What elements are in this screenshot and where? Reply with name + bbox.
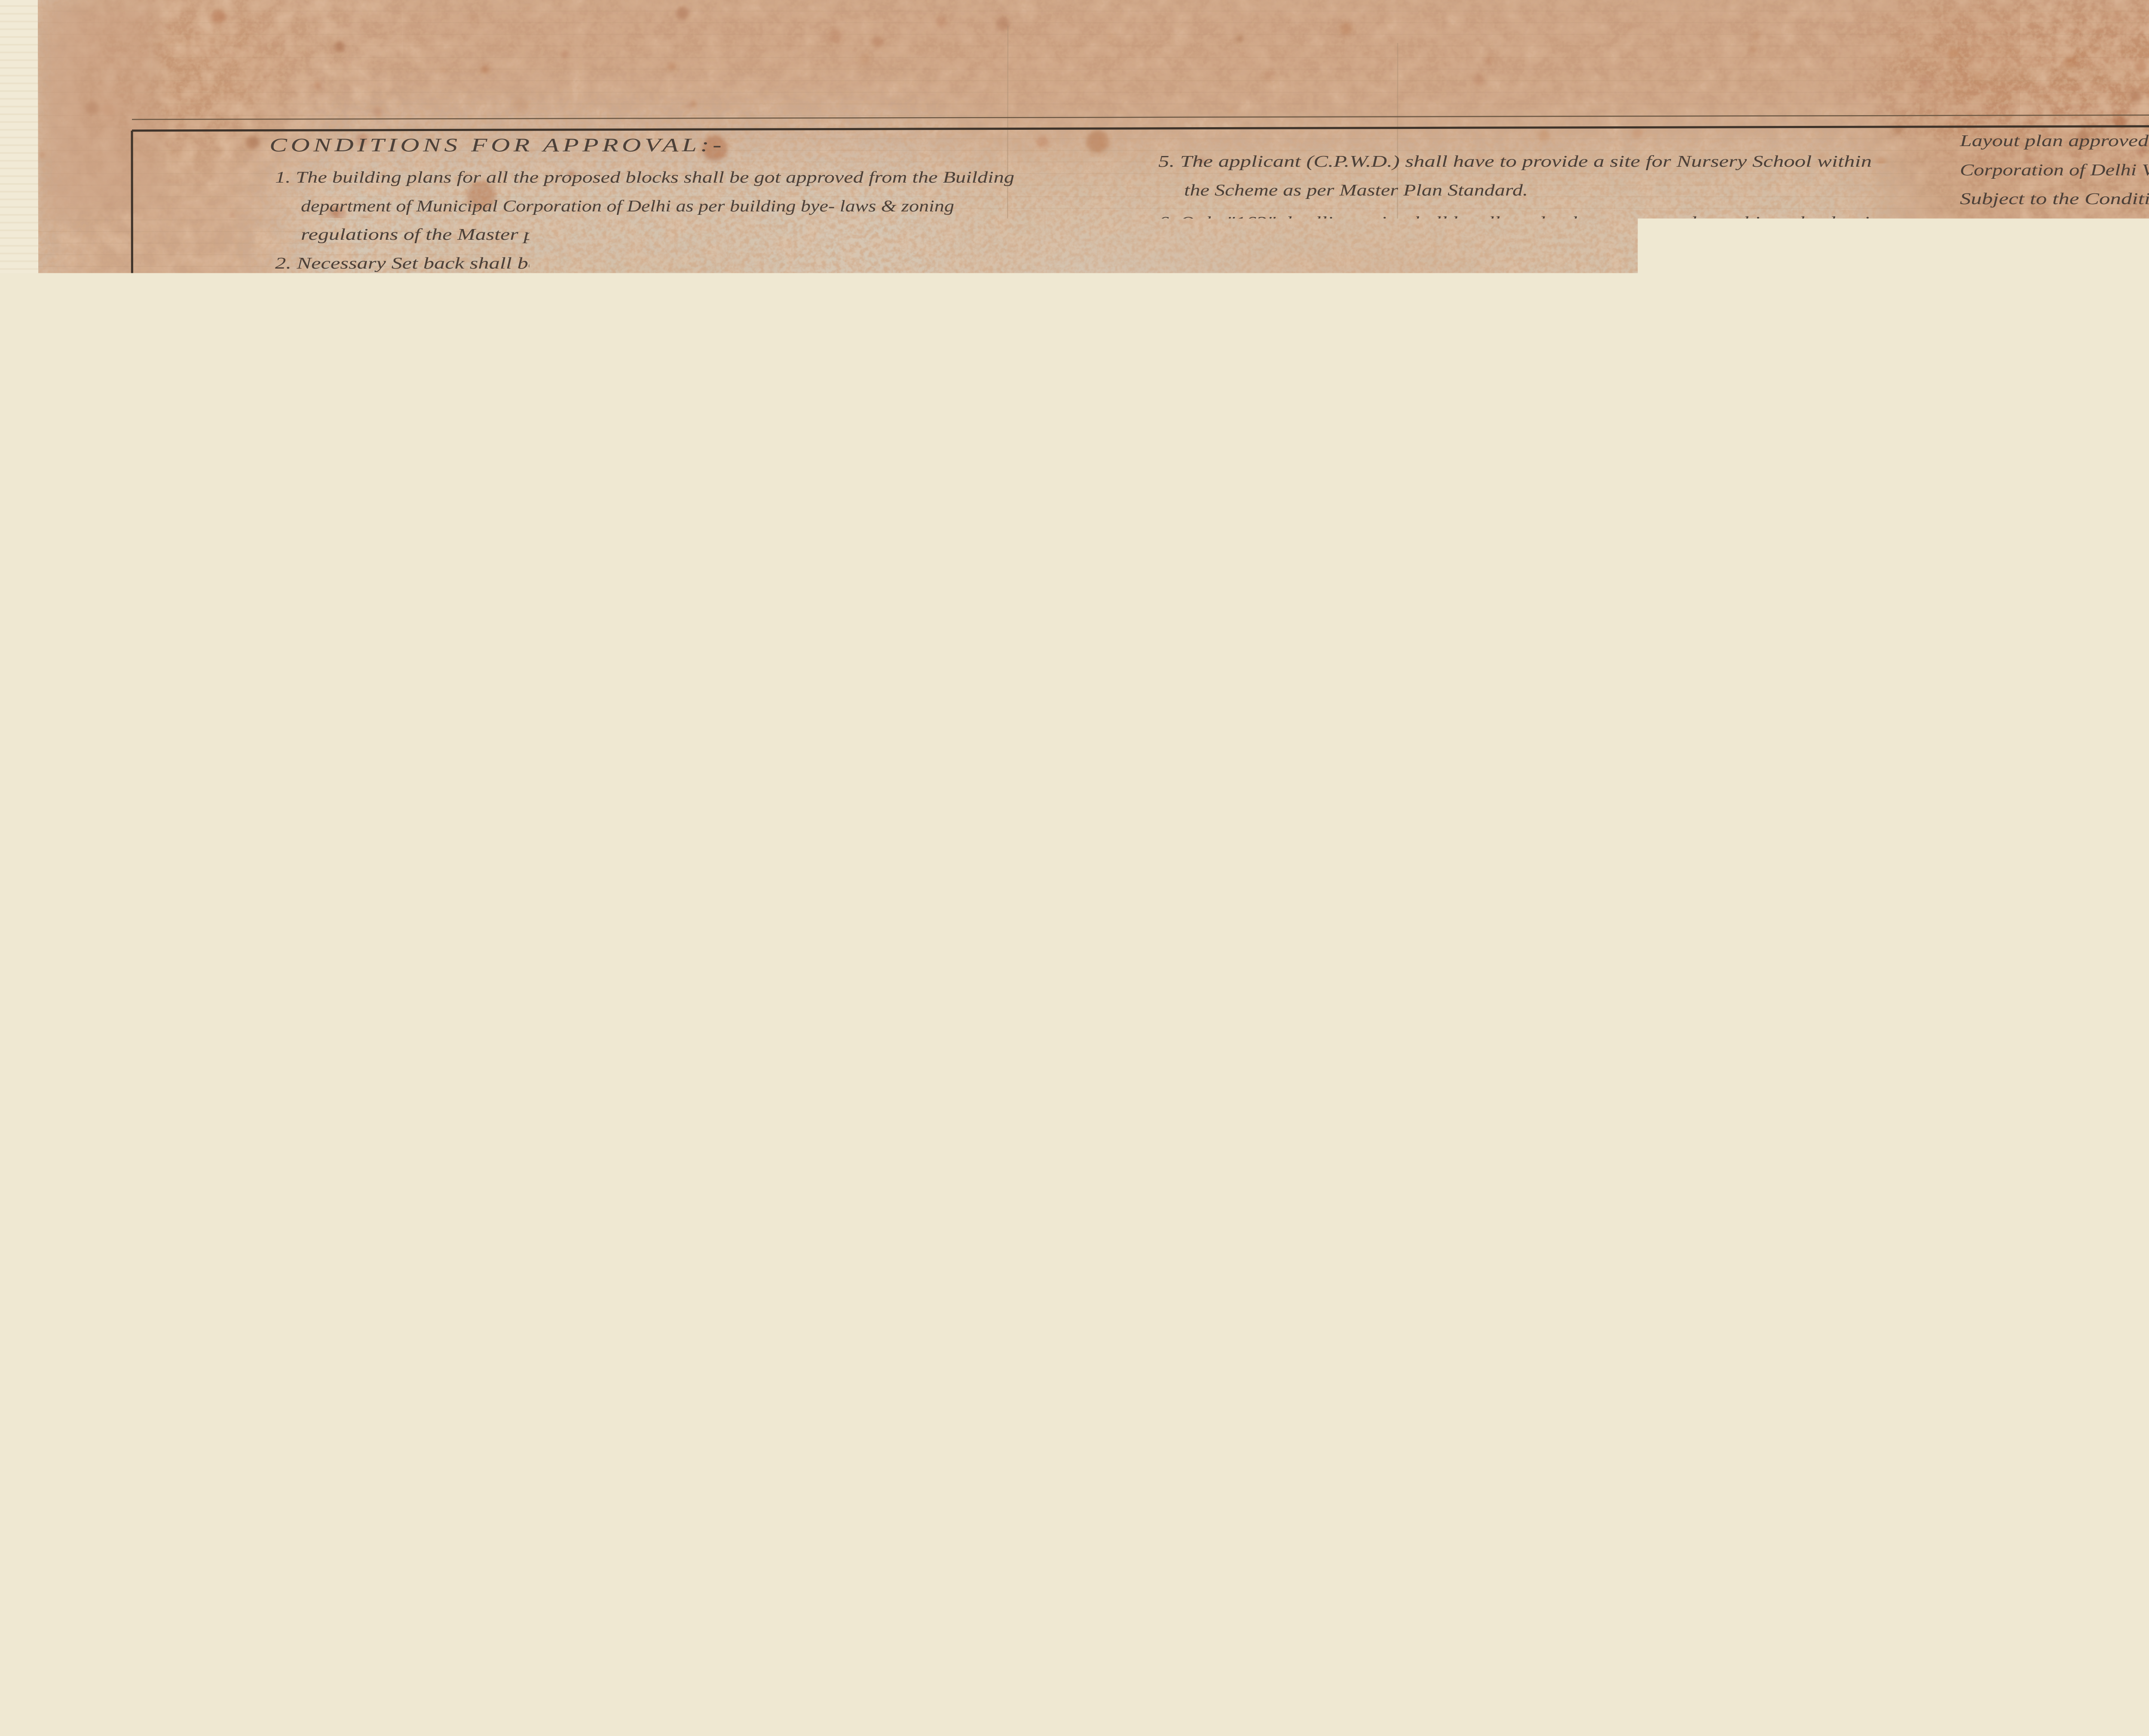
svg-text:PROBYN ROAD: PROBYN ROAD (2078, 810, 2149, 828)
svg-text:II/4: II/4 (542, 481, 567, 501)
svg-text:30': 30' (1736, 553, 1755, 570)
svg-text:III/4: III/4 (1602, 475, 1631, 494)
svg-text:SD/: SD/ (1821, 1417, 1851, 1436)
svg-text:CONST. DIVISION NO. VI C: CONST. DIVISION NO. VI C.P.W.D. NEW DELH… (988, 1247, 1433, 1265)
svg-text:II/4: II/4 (1324, 481, 1350, 501)
svg-text:CENTRAL GOVT, EMPLOYEES: CENTRAL GOVT, EMPLOYEES (1801, 1037, 2149, 1068)
svg-text:29. %: 29. % (831, 1040, 884, 1059)
svg-text:II/4: II/4 (962, 481, 987, 501)
svg-text:L: L (2002, 696, 2012, 716)
svg-text:1. AREA OF THE POCKET.: 1. AREA OF THE POCKET. — — — — — — — — —… (205, 884, 906, 903)
svg-text:B: B (749, 706, 761, 726)
svg-text:1 5 0: 1 5 0 (966, 1090, 1004, 1109)
svg-text:1101'-0": 1101'-0" (1246, 740, 1328, 761)
svg-text:85': 85' (1023, 512, 1044, 530)
svg-text:regulations of the Master plan: regulations of the Master plan. (301, 226, 567, 244)
svg-text:29-4½": 29-4½" (1667, 556, 1711, 571)
svg-text:5. TOTAL COVERED AREA ON: 5. TOTAL COVERED AREA ON ALL THE FLOORS … (205, 980, 910, 999)
svg-text:100-9": 100-9" (1537, 509, 1587, 527)
svg-text:3 . 72: 3 . 72 (658, 1119, 698, 1137)
svg-text:D: D (1528, 698, 1541, 718)
svg-text:II/4: II/4 (1061, 481, 1087, 501)
svg-text:1. THIS PLAN HAS BEEN PREP: 1. THIS PLAN HAS BEEN PREPARED ON THE BA… (988, 1192, 1491, 1210)
svg-text:': ' (2083, 376, 2086, 392)
svg-text:III/4: III/4 (2081, 475, 2109, 494)
svg-text:DATED 27. 10. 69: DATED 27. 10. 69 (2006, 1439, 2149, 1458)
svg-text:O: O (657, 706, 671, 727)
svg-text:L: L (676, 1379, 683, 1394)
svg-text:29-4½": 29-4½" (399, 523, 450, 539)
svg-text:R. K. AGGARWAL: R. K. AGGARWAL (1915, 1418, 2092, 1437)
svg-text:TOWN - PLANNING UNIT C. P.: TOWN - PLANNING UNIT C. P. W. D, NEW DEL… (1893, 1529, 2149, 1554)
svg-text:FOR STATEMENT REF DRG: FOR STATEMENT REF DRG NO T. P. 2 2 2 6 . (1700, 923, 2149, 942)
svg-text:A R C H I T E C T .: A R C H I T E C T . (1903, 1491, 2125, 1510)
svg-text:NO. 10: NO. 10 (2088, 779, 2147, 796)
svg-text:II/4: II/4 (1225, 481, 1250, 501)
svg-text:35 %.: 35 %. (974, 1037, 1026, 1056)
svg-text:85': 85' (499, 519, 521, 537)
svg-text:16/10: 16/10 (1745, 333, 1770, 345)
svg-text:A: A (1435, 699, 1447, 719)
svg-text:ROAD AREA TIMARPUR DELHI .: ROAD AREA TIMARPUR DELHI . (1801, 1106, 2149, 1137)
svg-text:25': 25' (1788, 551, 1807, 567)
svg-text:N: N (932, 704, 945, 724)
svg-text:MES: MES (168, 592, 218, 610)
svg-text:within the permissible limits: within the permissible limits (1184, 243, 1425, 261)
svg-text:N. D. ARCH, DIP T.P. A. I. I: N. D. ARCH, DIP T.P. A. I. I . A, A. I. … (1885, 1471, 2138, 1488)
svg-text:M: M (1813, 697, 1828, 717)
svg-text:100.9": 100.9" (1864, 557, 1914, 575)
svg-text:M. E. S. LAND: M. E. S. LAND (333, 1285, 473, 1301)
svg-text:65': 65' (628, 519, 650, 537)
svg-text:ACHIEVED: ACHIEVED (803, 1016, 907, 1034)
svg-text:DELT BY: DELT BY (1805, 1188, 1887, 1207)
svg-text:=: = (567, 1034, 577, 1053)
svg-text:65': 65' (891, 513, 912, 531)
svg-text:85': 85' (1271, 507, 1293, 525)
svg-text:III/4: III/4 (1807, 475, 1836, 494)
svg-text:85': 85' (761, 519, 782, 537)
svg-text:=: = (769, 1036, 779, 1055)
svg-text:Subject to the Conditions give: Subject to the Conditions given on the p… (1960, 190, 2149, 208)
svg-text:': ' (1952, 376, 1955, 392)
svg-text:department of Municipal Corpor: department of Municipal Corporation of D… (301, 197, 954, 215)
svg-text:A: A (676, 1330, 685, 1345)
svg-text:65': 65' (1152, 507, 1173, 525)
svg-text:T: T (1615, 696, 1626, 716)
svg-text:10'10': 10'10' (2027, 537, 2060, 551)
svg-text:M: M (676, 1303, 687, 1319)
svg-text:N: N (1343, 975, 1362, 1006)
svg-text:PERMISSIBLE.: PERMISSIBLE. (959, 1012, 1093, 1030)
svg-text:REDEVELOPMENT PLAN FOR PROB: REDEVELOPMENT PLAN FOR PROBYN (1801, 1077, 2149, 1108)
svg-text:400 FEET TO AN INCH .: 400 FEET TO AN INCH . (211, 1532, 458, 1551)
svg-text:F. A. R. — — — — — — — — =: F. A. R. — — — — — — — — = (262, 1102, 610, 1121)
svg-text:SURVEY PLAN DATED 25. 8. 69: SURVEY PLAN DATED 25. 8. 69 . SUPPLIED B… (1000, 1220, 1462, 1238)
svg-text:24.4.70: 24.4.70 (1268, 1396, 1299, 1407)
svg-text:good conditions as per M.C.D.: good conditions as per M.C.D. standards. (301, 367, 645, 385)
svg-text:II/4: II/4 (798, 481, 823, 501)
svg-text:R: R (566, 707, 579, 727)
svg-text:=: = (840, 1103, 850, 1122)
svg-text:SCALE' : 50 FEET TO AN: SCALE' : 50 FEET TO AN INCH . (1801, 1152, 2149, 1174)
svg-text:O: O (676, 1211, 686, 1227)
svg-text:60: 60 (2011, 419, 2029, 437)
svg-text:': ' (1504, 376, 1507, 392)
svg-text:#2: #2 (1748, 317, 1760, 329)
svg-text:L: L (2123, 695, 2133, 715)
svg-text:GENERAL POOL HOUSING FOR: GENERAL POOL HOUSING FOR (1801, 995, 2149, 1026)
svg-text:MES LAND: MES LAND (1733, 783, 1846, 801)
svg-text:P: P (478, 707, 490, 727)
svg-text:A: A (1913, 696, 1926, 716)
svg-text:NOTES:.: NOTES:. (979, 1162, 1065, 1181)
svg-text:5. The applicant (C.P.W.D.) sh: 5. The applicant (C.P.W.D.) shall have t… (1158, 153, 1872, 171)
svg-text:II/4: II/4 (694, 481, 719, 501)
svg-text:4. TOTAL GROUND COVERAGE.: 4. TOTAL GROUND COVERAGE. — — — — — — — … (205, 960, 902, 978)
svg-text:1 0 4: 1 0 4 (872, 1104, 911, 1123)
svg-text:III/4: III/4 (1932, 475, 1960, 494)
svg-text:3. POPULATION = 2 2 4: 3. POPULATION = 2 2 4 × 4. 5 — — — — — —… (205, 935, 919, 954)
svg-text:O: O (1633, 696, 1647, 716)
svg-text:FOR KEY PLAN REF DRG: FOR KEY PLAN REF DRG NO T. P. 2 2 2 9 . (1700, 951, 2149, 970)
svg-text:K. R. SHARMA .: K. R. SHARMA . (1981, 1186, 2130, 1205)
svg-text:CONDITIONS FOR APPROVAL:-: CONDITIONS FOR APPROVAL:- (269, 134, 725, 156)
svg-text:O: O (1864, 1231, 1878, 1250)
svg-text:4. If at any stage, The Servic: 4. If at any stage, The Services are tra… (275, 339, 1006, 357)
svg-text:L: L (676, 1355, 683, 1370)
svg-text:regulations.: regulations. (301, 283, 400, 301)
svg-text:O: O (1342, 700, 1356, 720)
svg-text:10': 10' (713, 431, 729, 446)
svg-text:1. The building plans for all: 1. The building plans for all the propos… (275, 168, 1014, 186)
svg-text:R: R (1233, 700, 1246, 721)
svg-text:5: 5 (1828, 385, 1835, 400)
svg-text:2. D. U'S PROVIDED — — —: 2. D. U'S PROVIDED — — — — — — — — — — -… (205, 912, 799, 931)
svg-text:II/4: II/4 (435, 481, 461, 501)
svg-text:2. Necessary Set back shall be: 2. Necessary Set back shall be provided … (275, 254, 946, 272)
svg-text:3 . 72: 3 . 72 (610, 1051, 651, 1069)
svg-text:FILE N: FILE N (1805, 1231, 1869, 1250)
svg-text:III/4: III/4 (1477, 475, 1506, 494)
svg-text:': ' (1837, 376, 1840, 392)
svg-text:KEY PLAN: KEY PLAN (253, 1483, 404, 1524)
svg-text:32-0": 32-0" (1071, 703, 1086, 736)
svg-text:DETAILS OF COVERAGE AND F.: DETAILS OF COVERAGE AND F. A. R. (211, 847, 769, 872)
svg-text:1100'-0": 1100'-0" (1296, 360, 1381, 382)
svg-text:3. 88 X 1 0 0: 3. 88 X 1 0 0 (625, 1093, 718, 1111)
svg-text:MES LAND: MES LAND (187, 532, 319, 550)
svg-text:5: 5 (1943, 385, 1950, 400)
svg-text:10': 10' (970, 427, 986, 441)
svg-text:6. Only "163" dwelling units s: 6. Only "163" dwelling units shall be al… (1158, 214, 1885, 232)
svg-text:the Scheme as per Master Plan: the Scheme as per Master Plan Standard. (1184, 181, 1528, 199)
svg-text:SUB·STATION.: SUB·STATION. (154, 617, 317, 635)
svg-text:3. All the Services shall be l: 3. All the Services shall be laid and ma… (275, 312, 1014, 330)
svg-text:JR. TOWN PLANNER.: JR. TOWN PLANNER. (1713, 298, 1872, 312)
svg-text:5: 5 (2074, 385, 2082, 400)
svg-text:Y: Y (839, 705, 851, 725)
svg-text:EME: EME (170, 400, 223, 419)
svg-text:5: 5 (1495, 385, 1503, 400)
svg-text:138'-0": 138'-0" (345, 513, 364, 578)
svg-text:Layout plan approved by the St: Layout plan approved by the Standing Com… (1959, 132, 2149, 150)
svg-text:RADIO STATION: RADIO STATION (523, 1520, 657, 1537)
svg-text:1 . 0 8 X 1 0 0: 1 . 0 8 X 1 0 0 (581, 1026, 683, 1044)
svg-text:M. E. S. LAND.: M. E. S. LAND. (1095, 828, 1313, 850)
svg-text:Corporation of Delhi Vide Reso: Corporation of Delhi Vide Resolution No.… (1960, 161, 2149, 179)
svg-text:R: R (676, 1187, 686, 1203)
svg-text:% OF GROUND COVERAGE.: % OF GROUND COVERAGE. (241, 1034, 559, 1053)
svg-text:ALL INDIA: ALL INDIA (534, 1496, 618, 1513)
svg-text:65': 65' (1387, 501, 1409, 519)
svg-text:10': 10' (444, 436, 460, 450)
